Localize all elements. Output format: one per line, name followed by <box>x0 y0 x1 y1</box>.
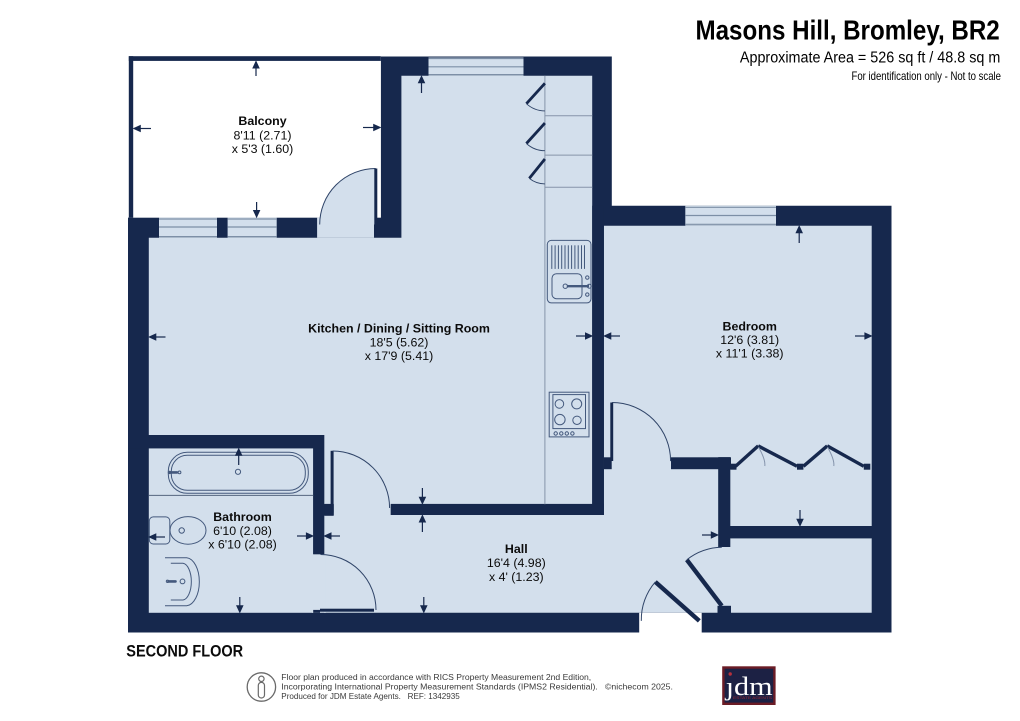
svg-text:x 17'9 (5.41): x 17'9 (5.41) <box>365 349 434 363</box>
svg-text:Bedroom: Bedroom <box>723 319 777 333</box>
svg-text:x 5'3 (1.60): x 5'3 (1.60) <box>232 142 294 156</box>
svg-text:For identification only - Not: For identification only - Not to scale <box>852 69 1002 83</box>
svg-text:x 11'1 (3.38): x 11'1 (3.38) <box>716 347 784 361</box>
svg-text:Hall: Hall <box>505 542 528 556</box>
svg-text:12'6 (3.81): 12'6 (3.81) <box>720 333 779 347</box>
svg-text:Kitchen / Dining / Sitting Roo: Kitchen / Dining / Sitting Room <box>308 322 490 336</box>
svg-text:x 4' (1.23): x 4' (1.23) <box>489 570 544 584</box>
svg-text:8'11 (2.71): 8'11 (2.71) <box>234 128 292 142</box>
svg-text:Incorporating International Pr: Incorporating International Property Mea… <box>281 682 673 692</box>
svg-text:Balcony: Balcony <box>238 114 286 128</box>
svg-text:Bathroom: Bathroom <box>213 510 272 524</box>
svg-text:16'4 (4.98): 16'4 (4.98) <box>487 556 546 570</box>
svg-text:x 6'10 (2.08): x 6'10 (2.08) <box>208 537 277 551</box>
svg-text:6'10 (2.08): 6'10 (2.08) <box>213 524 272 538</box>
svg-text:Floor plan produced in accorda: Floor plan produced in accordance with R… <box>281 672 591 682</box>
svg-text:Approximate Area = 526 sq ft /: Approximate Area = 526 sq ft / 48.8 sq m <box>740 50 1000 67</box>
svg-text:18'5 (5.62): 18'5 (5.62) <box>370 335 429 349</box>
svg-text:Produced for JDM Estate Agents: Produced for JDM Estate Agents. REF: 134… <box>281 691 460 701</box>
svg-text:SECOND FLOOR: SECOND FLOOR <box>126 643 243 661</box>
svg-text:ESTATE AGENTS: ESTATE AGENTS <box>733 695 772 700</box>
svg-text:Masons Hill, Bromley, BR2: Masons Hill, Bromley, BR2 <box>696 14 1000 45</box>
